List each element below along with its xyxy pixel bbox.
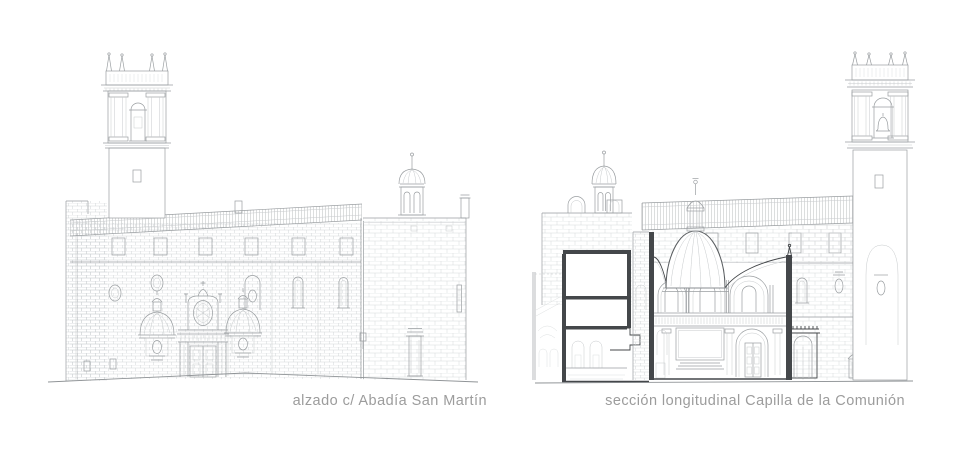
roof-lantern — [398, 153, 426, 215]
elevation-caption: alzado c/ Abadía San Martín — [187, 393, 487, 409]
bell-tower — [101, 53, 173, 218]
background-turret — [592, 151, 622, 213]
section-drawing — [530, 45, 920, 390]
bell-gable — [568, 197, 585, 214]
bell — [876, 113, 890, 131]
section-caption: sección longitudinal Capilla de la Comun… — [555, 393, 905, 409]
belfry-pinnacles — [853, 52, 908, 65]
drawing-sheet: alzado c/ Abadía San Martín sección long… — [0, 0, 970, 450]
belfry-arch — [129, 103, 147, 141]
belfry-columns — [852, 92, 908, 140]
chimney — [461, 198, 469, 218]
elevation-drawing — [30, 5, 500, 390]
sectioned-house — [562, 250, 640, 382]
belfry-pinnacles — [107, 53, 168, 71]
bell-tower — [845, 52, 915, 380]
east-block — [360, 153, 471, 380]
